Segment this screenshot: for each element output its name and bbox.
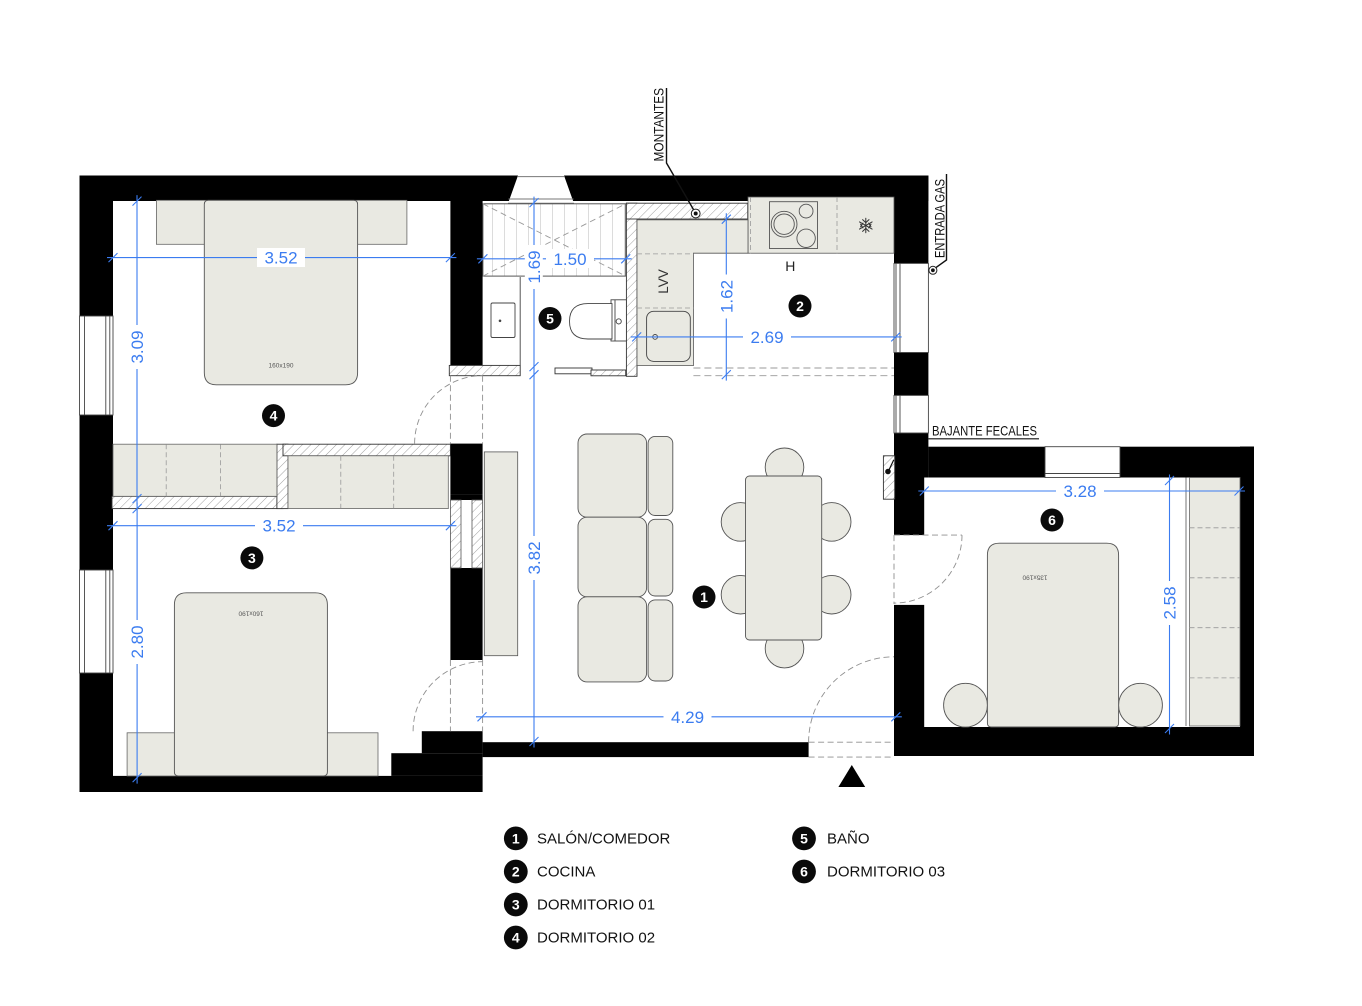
svg-text:2.58: 2.58 bbox=[1161, 586, 1180, 619]
svg-text:COCINA: COCINA bbox=[537, 864, 595, 881]
svg-text:3: 3 bbox=[512, 897, 520, 913]
svg-text:6: 6 bbox=[800, 864, 808, 880]
svg-text:DORMITORIO 01: DORMITORIO 01 bbox=[537, 897, 655, 914]
svg-text:1.62: 1.62 bbox=[717, 280, 736, 313]
svg-text:4.29: 4.29 bbox=[671, 708, 704, 727]
svg-text:3.52: 3.52 bbox=[262, 517, 295, 536]
svg-text:ENTRADA GAS: ENTRADA GAS bbox=[932, 179, 948, 258]
svg-text:160x190: 160x190 bbox=[269, 363, 294, 370]
svg-text:3.52: 3.52 bbox=[264, 249, 297, 268]
svg-text:5: 5 bbox=[546, 311, 554, 327]
svg-text:MONTANTES: MONTANTES bbox=[651, 88, 667, 162]
svg-text:160x190: 160x190 bbox=[238, 610, 263, 617]
svg-text:H: H bbox=[785, 258, 795, 274]
svg-text:3.09: 3.09 bbox=[128, 330, 147, 363]
svg-text:6: 6 bbox=[1048, 512, 1056, 528]
svg-text:DORMITORIO 02: DORMITORIO 02 bbox=[537, 930, 655, 947]
svg-text:2.69: 2.69 bbox=[750, 328, 783, 347]
svg-text:BAÑO: BAÑO bbox=[827, 830, 870, 847]
svg-text:2: 2 bbox=[796, 298, 804, 314]
svg-text:2.80: 2.80 bbox=[128, 625, 147, 658]
svg-text:LVV: LVV bbox=[656, 269, 671, 294]
svg-text:3.28: 3.28 bbox=[1063, 482, 1096, 501]
svg-text:3: 3 bbox=[248, 550, 256, 566]
svg-text:4: 4 bbox=[512, 930, 520, 946]
svg-text:1: 1 bbox=[512, 830, 520, 846]
svg-text:3.82: 3.82 bbox=[525, 541, 544, 574]
svg-text:2: 2 bbox=[512, 864, 520, 880]
svg-text:135x190: 135x190 bbox=[1022, 574, 1047, 581]
svg-text:4: 4 bbox=[270, 408, 278, 424]
svg-text:1: 1 bbox=[700, 589, 708, 605]
svg-text:BAJANTE FECALES: BAJANTE FECALES bbox=[932, 423, 1037, 439]
svg-text:DORMITORIO 03: DORMITORIO 03 bbox=[827, 864, 945, 881]
svg-text:1.69: 1.69 bbox=[525, 250, 544, 283]
svg-text:SALÓN/COMEDOR: SALÓN/COMEDOR bbox=[537, 830, 671, 847]
svg-text:5: 5 bbox=[800, 830, 808, 846]
svg-text:1.50: 1.50 bbox=[553, 250, 586, 269]
